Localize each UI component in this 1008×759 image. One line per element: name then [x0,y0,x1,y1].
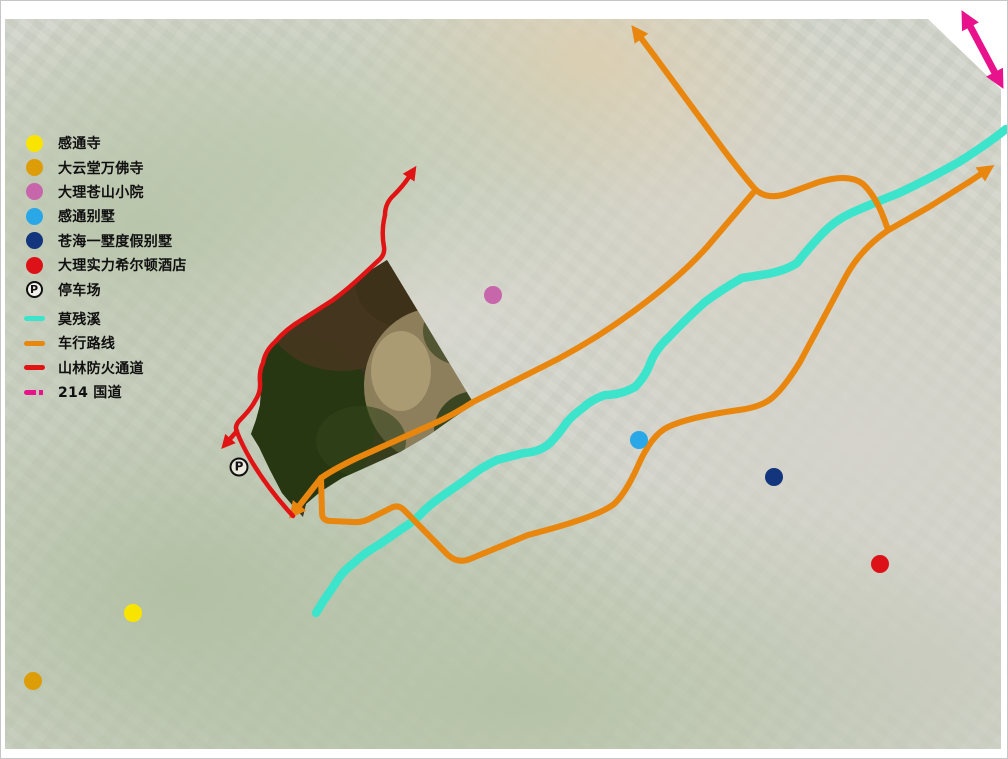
parking-icon: P [26,281,43,298]
legend-item-driving-route: 车行路线 [19,331,249,355]
dot-swatch-icon [26,208,43,225]
legend-item-dali-cangshan-courtyard: 大理苍山小院 [19,180,249,204]
legend-label-mocan-stream: 莫残溪 [58,309,101,329]
legend-label-canghai-villa-resort: 苍海一墅度假别墅 [58,231,172,251]
dot-swatch-icon [26,183,43,200]
legend-label-gantong-temple: 感通寺 [58,133,101,153]
legend-item-gantong-temple: 感通寺 [19,131,249,155]
legend-item-dayuntang-wanfo-temple: 大云堂万佛寺 [19,155,249,179]
legend-item-parking: P 停车场 [19,277,249,301]
legend-swatch-g214-highway [19,390,49,395]
dot-swatch-icon [26,135,43,152]
legend-label-g214-highway: 214 国道 [58,382,122,402]
gantong-temple-marker [124,604,142,622]
line-swatch-icon [24,365,45,370]
line-swatch-icon [24,341,45,346]
legend-label-dali-cangshan-courtyard: 大理苍山小院 [58,182,144,202]
legend-swatch-dayuntang-wanfo-temple [19,159,49,176]
legend-swatch-fire-channel [19,365,49,370]
legend-swatch-parking: P [19,281,49,298]
dayuntang-wanfo-temple-marker [24,672,42,690]
legend-item-mocan-stream: 莫残溪 [19,307,249,331]
legend-item-fire-channel: 山林防火通道 [19,356,249,380]
legend-label-driving-route: 车行路线 [58,333,115,353]
legend-swatch-dali-cangshan-courtyard [19,183,49,200]
legend-swatch-gantong-villa [19,208,49,225]
dali-cangshan-courtyard-marker [484,286,502,304]
legend-swatch-mocan-stream [19,316,49,321]
legend-label-parking: 停车场 [58,280,101,300]
gantong-villa-marker [630,431,648,449]
line-dashed-swatch-icon [24,390,45,395]
legend-item-g214-highway: 214 国道 [19,380,249,404]
legend-label-fire-channel: 山林防火通道 [58,358,144,378]
parking-marker: P [230,458,249,477]
canghai-villa-resort-marker [765,468,783,486]
dot-swatch-icon [26,232,43,249]
legend-swatch-canghai-villa-resort [19,232,49,249]
legend-swatch-gantong-temple [19,135,49,152]
legend-swatch-driving-route [19,341,49,346]
legend-label-gantong-villa: 感通别墅 [58,206,115,226]
legend-item-canghai-villa-resort: 苍海一墅度假别墅 [19,229,249,253]
legend-item-dali-hilton-hotel: 大理实力希尔顿酒店 [19,253,249,277]
legend-label-dayuntang-wanfo-temple: 大云堂万佛寺 [58,158,144,178]
legend-swatch-dali-hilton-hotel [19,257,49,274]
dot-swatch-icon [26,257,43,274]
legend-label-dali-hilton-hotel: 大理实力希尔顿酒店 [58,255,187,275]
legend: 感通寺 大云堂万佛寺 大理苍山小院 感通别墅 苍海一墅度假别墅 大理实力希尔顿酒… [19,131,249,404]
legend-item-gantong-villa: 感通别墅 [19,204,249,228]
line-swatch-icon [24,316,45,321]
dali-hilton-hotel-marker [871,555,889,573]
map-screenshot: P 感通寺 大云堂万佛寺 大理苍山小院 感通别墅 苍海一墅度假别墅 大理实力希尔… [0,0,1008,759]
dot-swatch-icon [26,159,43,176]
